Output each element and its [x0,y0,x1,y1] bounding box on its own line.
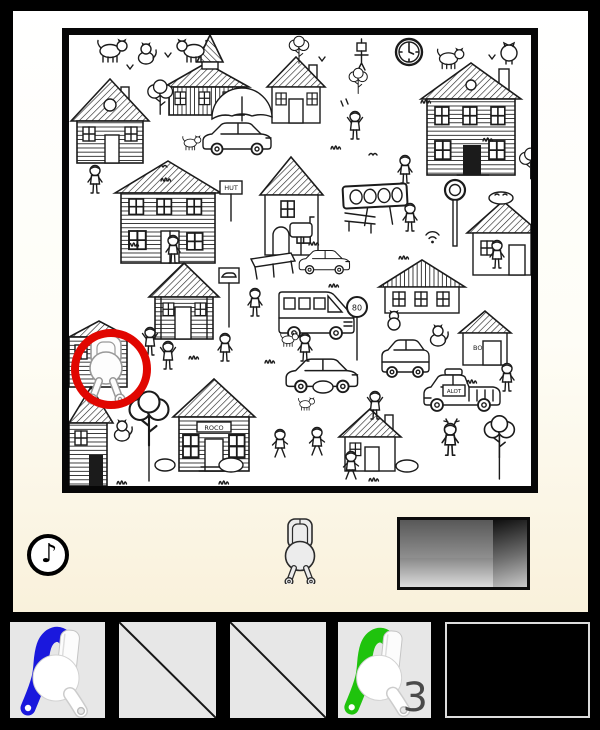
kid [310,428,325,456]
inventory-slot-1[interactable] [10,622,105,718]
shed-sign-text: BO [473,344,482,352]
house [267,57,325,123]
empty-slot-diagonal [230,622,326,718]
dog [299,397,315,410]
banner-sign [343,183,409,226]
tree [520,148,531,179]
post-sign-text: HUT [224,184,238,192]
content-panel: ROCO [13,11,588,612]
cat [431,324,449,346]
gradient-display-right [493,520,527,587]
figure-tool-blue-icon [10,622,105,718]
town-illustration: ROCO [69,35,531,486]
bush [396,460,418,472]
post-sign: HUT [220,181,242,221]
dog [98,39,127,63]
kid [403,204,417,232]
car [203,123,271,155]
dog [183,135,201,150]
dog [438,47,464,68]
shed: BO [459,311,511,365]
bush [313,381,333,393]
empty-slot-diagonal [119,622,216,718]
house [260,157,323,255]
found-object[interactable] [87,336,125,404]
kid [398,156,412,184]
house [115,161,221,263]
pig [501,43,517,64]
inventory-slot-3-empty[interactable] [230,622,326,718]
inventory-slot-2-empty[interactable] [119,622,216,718]
lollipop-sign [445,180,465,246]
slot-count-badge: 3 [403,676,428,720]
plate-sign-text: ALOT [447,389,462,395]
house [71,79,149,163]
table [251,253,295,279]
house [149,263,219,339]
wifi-doodle [426,232,439,244]
gradient-display [397,517,530,590]
kid [500,364,514,392]
inventory-slot-5-display[interactable] [445,622,590,718]
game-window: { "scene": { "description": "black-and-w… [0,0,600,730]
scarecrow [355,39,368,70]
gradient-display-main [400,520,493,558]
suv [382,340,429,377]
kid [348,112,363,140]
cat [115,419,133,441]
scene-canvas[interactable]: ROCO [62,28,538,493]
target-figure-icon [283,516,317,584]
inventory-slot-4[interactable]: 3 [338,622,431,718]
house [421,63,521,175]
tree [289,36,309,63]
kid [161,342,176,370]
plate-sign: ALOT [443,385,465,396]
round-sign-text: 80 [352,304,362,313]
bench [345,213,375,233]
gradient-display-bottom [400,558,493,587]
kid [273,430,288,458]
van [279,292,354,339]
storefront-sign-text: ROCO [204,424,223,432]
house [379,260,465,313]
bear [388,310,400,330]
deer-kid [442,419,459,455]
kid [88,166,102,194]
clock [396,39,422,65]
kid [218,334,232,362]
music-button[interactable]: ♪ [27,534,69,576]
tree [349,68,367,93]
bush [219,458,243,472]
bus-sign [219,268,239,327]
music-note-icon: ♪ [41,541,58,567]
bush [155,459,175,471]
cat [139,42,157,64]
sleeping-cat [489,192,513,204]
kid [248,289,262,317]
tree [484,416,514,479]
storefront-building: ROCO [173,379,255,471]
kid [298,334,312,362]
